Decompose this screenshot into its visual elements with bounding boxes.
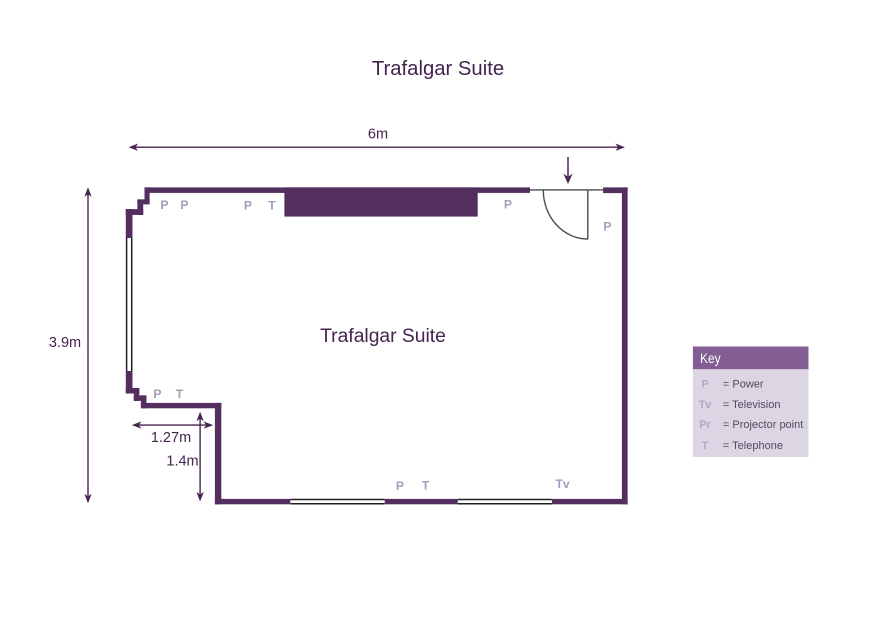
svg-text:P: P [504, 198, 512, 212]
svg-text:= Power: = Power [723, 379, 764, 391]
svg-text:T: T [422, 479, 430, 493]
svg-text:1.27m: 1.27m [151, 430, 191, 446]
svg-text:T: T [268, 199, 276, 213]
svg-text:T: T [176, 387, 184, 401]
svg-text:Trafalgar Suite: Trafalgar Suite [372, 58, 504, 80]
svg-text:T: T [702, 440, 709, 452]
svg-text:P: P [160, 198, 168, 212]
svg-text:= Television: = Television [723, 399, 781, 411]
svg-text:Pr: Pr [699, 419, 711, 431]
svg-text:P: P [244, 199, 252, 213]
svg-text:P: P [701, 379, 708, 391]
svg-text:3.9m: 3.9m [49, 335, 81, 351]
svg-text:Tv: Tv [555, 477, 569, 491]
svg-text:= Projector point: = Projector point [723, 419, 803, 431]
svg-text:Tv: Tv [699, 399, 713, 411]
svg-text:P: P [153, 387, 161, 401]
svg-text:P: P [396, 479, 404, 493]
svg-text:6m: 6m [368, 127, 388, 143]
svg-text:Key: Key [700, 350, 721, 366]
svg-text:Trafalgar Suite: Trafalgar Suite [320, 326, 446, 347]
svg-text:P: P [180, 198, 188, 212]
svg-text:P: P [603, 220, 611, 234]
svg-text:= Telephone: = Telephone [723, 440, 783, 452]
svg-text:1.4m: 1.4m [166, 453, 198, 469]
